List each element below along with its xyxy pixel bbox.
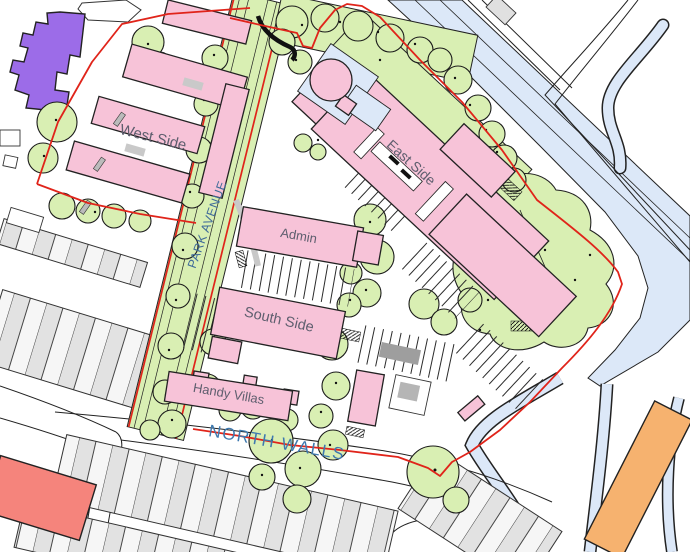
site-plan-canvas: West Side East Side Admin South Side Han… <box>0 0 690 552</box>
outbuilding <box>348 370 385 426</box>
white-building-outline <box>78 0 141 22</box>
outbuilding <box>458 396 485 421</box>
site-plan-map: West Side East Side Admin South Side Han… <box>0 0 690 552</box>
terrace-row <box>0 219 148 288</box>
purple-building <box>10 12 85 112</box>
